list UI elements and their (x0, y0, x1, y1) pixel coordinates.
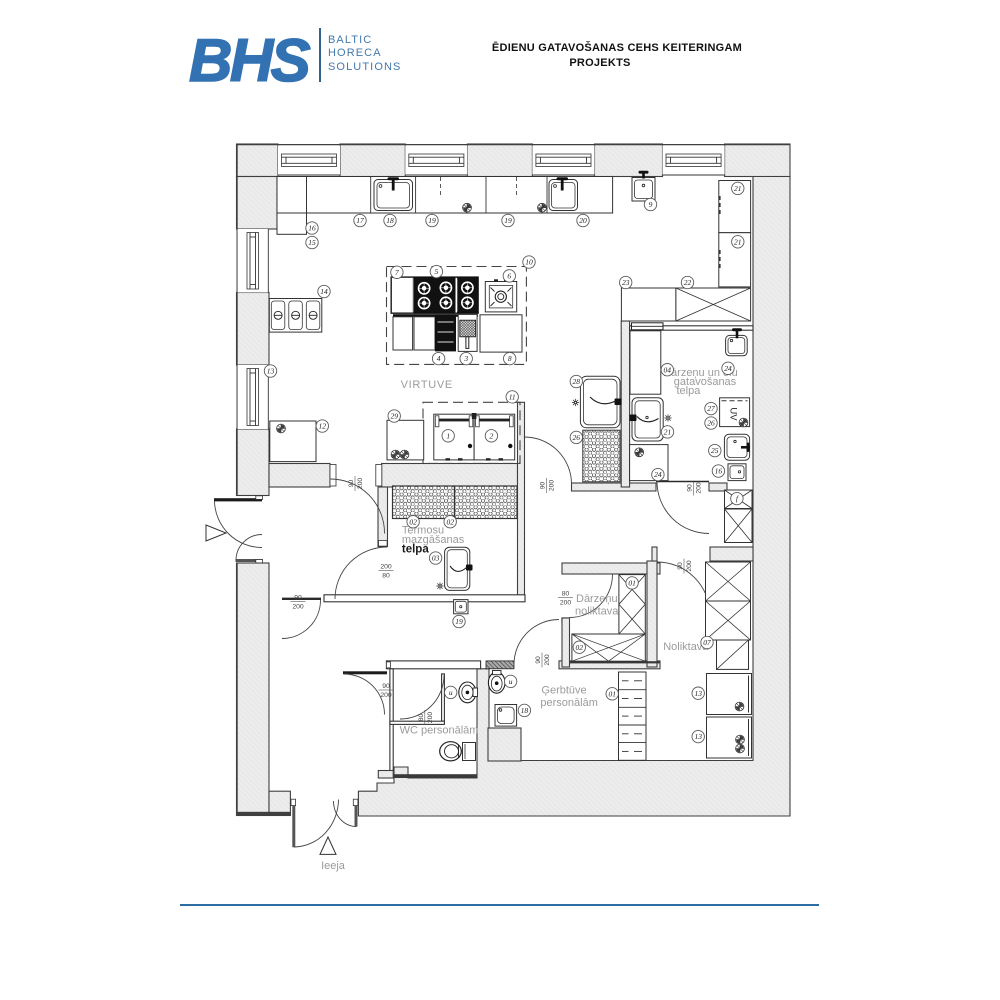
svg-text:07: 07 (703, 638, 711, 647)
svg-text:21: 21 (664, 428, 672, 437)
svg-text:5: 5 (435, 267, 439, 276)
svg-text:18: 18 (521, 706, 529, 715)
svg-text:200: 200 (696, 482, 703, 494)
svg-text:4: 4 (437, 354, 441, 363)
svg-text:13: 13 (267, 367, 275, 376)
svg-text:personālām: personālām (540, 697, 597, 709)
svg-text:90: 90 (294, 595, 302, 602)
svg-text:u: u (449, 688, 453, 697)
svg-text:02: 02 (409, 517, 417, 526)
svg-text:7: 7 (395, 268, 399, 277)
svg-text:3: 3 (463, 354, 468, 363)
svg-text:18: 18 (386, 216, 394, 225)
svg-text:21: 21 (734, 184, 742, 193)
svg-text:22: 22 (684, 278, 692, 287)
svg-text:80: 80 (562, 591, 570, 598)
svg-text:200: 200 (357, 478, 364, 490)
svg-text:19: 19 (504, 216, 512, 225)
svg-text:04: 04 (664, 365, 672, 374)
svg-text:2: 2 (490, 431, 494, 440)
svg-text:17: 17 (356, 216, 364, 225)
svg-text:13: 13 (694, 732, 702, 741)
svg-text:01: 01 (628, 579, 636, 588)
svg-text:14: 14 (320, 287, 328, 296)
svg-text:200: 200 (686, 560, 693, 572)
svg-text:26: 26 (707, 419, 715, 428)
svg-text:80: 80 (418, 714, 425, 722)
svg-text:03: 03 (432, 554, 440, 563)
svg-text:27: 27 (707, 404, 715, 413)
svg-text:200: 200 (544, 654, 551, 666)
svg-text:200: 200 (380, 564, 392, 571)
svg-text:16: 16 (715, 467, 723, 476)
svg-text:90: 90 (540, 482, 547, 490)
svg-text:1: 1 (446, 431, 450, 440)
svg-text:noliktava: noliktava (575, 606, 619, 618)
svg-text:telpa: telpa (402, 543, 429, 555)
svg-text:25: 25 (711, 446, 719, 455)
svg-text:90: 90 (382, 683, 390, 690)
svg-text:8: 8 (508, 354, 512, 363)
svg-text:01: 01 (608, 689, 616, 698)
svg-text:VIRTUVE: VIRTUVE (401, 379, 453, 391)
svg-text:Dārzeņu: Dārzeņu (576, 593, 618, 605)
svg-text:24: 24 (724, 364, 732, 373)
svg-text:26: 26 (573, 433, 581, 442)
svg-text:90: 90 (535, 656, 542, 664)
svg-text:21: 21 (734, 237, 742, 246)
svg-text:telpa: telpa (676, 385, 701, 397)
svg-text:200: 200 (292, 604, 304, 611)
svg-text:80: 80 (382, 573, 390, 580)
svg-text:90: 90 (348, 480, 355, 488)
svg-text:28: 28 (573, 377, 581, 386)
svg-text:13: 13 (694, 689, 702, 698)
svg-text:15: 15 (308, 238, 316, 247)
svg-text:200: 200 (549, 480, 556, 492)
svg-text:90: 90 (677, 562, 684, 570)
svg-text:10: 10 (525, 258, 533, 267)
svg-text:24: 24 (654, 470, 662, 479)
svg-text:UV: UV (727, 407, 738, 421)
svg-text:Ģerbtūve: Ģerbtūve (541, 685, 586, 697)
svg-text:WC personālām: WC personālām (400, 725, 479, 737)
svg-text:20: 20 (579, 216, 587, 225)
svg-text:02: 02 (576, 643, 584, 652)
svg-text:6: 6 (507, 272, 511, 281)
svg-text:Ieeja: Ieeja (321, 860, 346, 872)
svg-text:200: 200 (427, 712, 434, 724)
svg-text:02: 02 (446, 517, 454, 526)
svg-text:200: 200 (380, 692, 392, 699)
svg-text:90: 90 (687, 484, 694, 492)
svg-text:16: 16 (308, 224, 316, 233)
svg-text:11: 11 (509, 393, 516, 402)
svg-text:19: 19 (428, 216, 436, 225)
svg-text:23: 23 (622, 278, 630, 287)
svg-text:200: 200 (560, 600, 572, 607)
svg-text:19: 19 (455, 617, 463, 626)
svg-text:9: 9 (649, 200, 653, 209)
svg-text:12: 12 (319, 422, 327, 431)
svg-text:u: u (509, 677, 513, 686)
svg-text:29: 29 (390, 412, 398, 421)
